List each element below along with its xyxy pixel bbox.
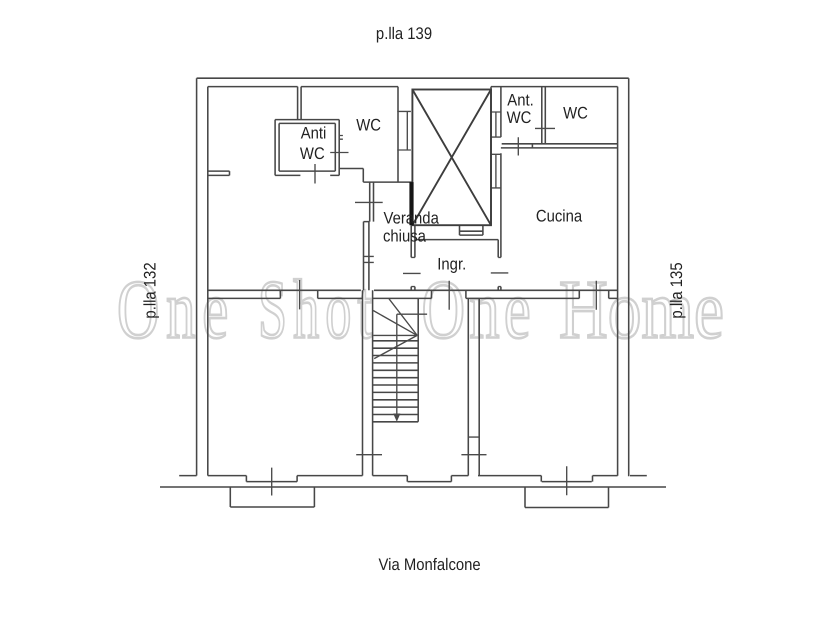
svg-text:One: One — [117, 264, 235, 357]
svg-text:p.lla 139: p.lla 139 — [376, 24, 432, 43]
svg-text:Veranda: Veranda — [384, 209, 440, 228]
svg-text:chiusa: chiusa — [383, 226, 427, 245]
svg-text:p.lla 135: p.lla 135 — [667, 262, 686, 318]
svg-text:Home: Home — [559, 264, 724, 357]
svg-text:p.lla 132: p.lla 132 — [141, 262, 160, 318]
svg-text:Ingr.: Ingr. — [437, 255, 466, 274]
svg-text:Cucina: Cucina — [536, 207, 583, 226]
svg-text:Via Monfalcone: Via Monfalcone — [379, 555, 481, 574]
svg-text:One: One — [422, 264, 536, 357]
svg-text:WC: WC — [563, 103, 588, 122]
svg-text:Shot: Shot — [258, 264, 378, 357]
svg-text:Ant.: Ant. — [507, 90, 533, 109]
svg-text:WC: WC — [300, 144, 325, 163]
svg-text:WC: WC — [356, 115, 381, 134]
svg-text:Anti: Anti — [301, 124, 327, 143]
svg-text:WC: WC — [507, 108, 532, 127]
